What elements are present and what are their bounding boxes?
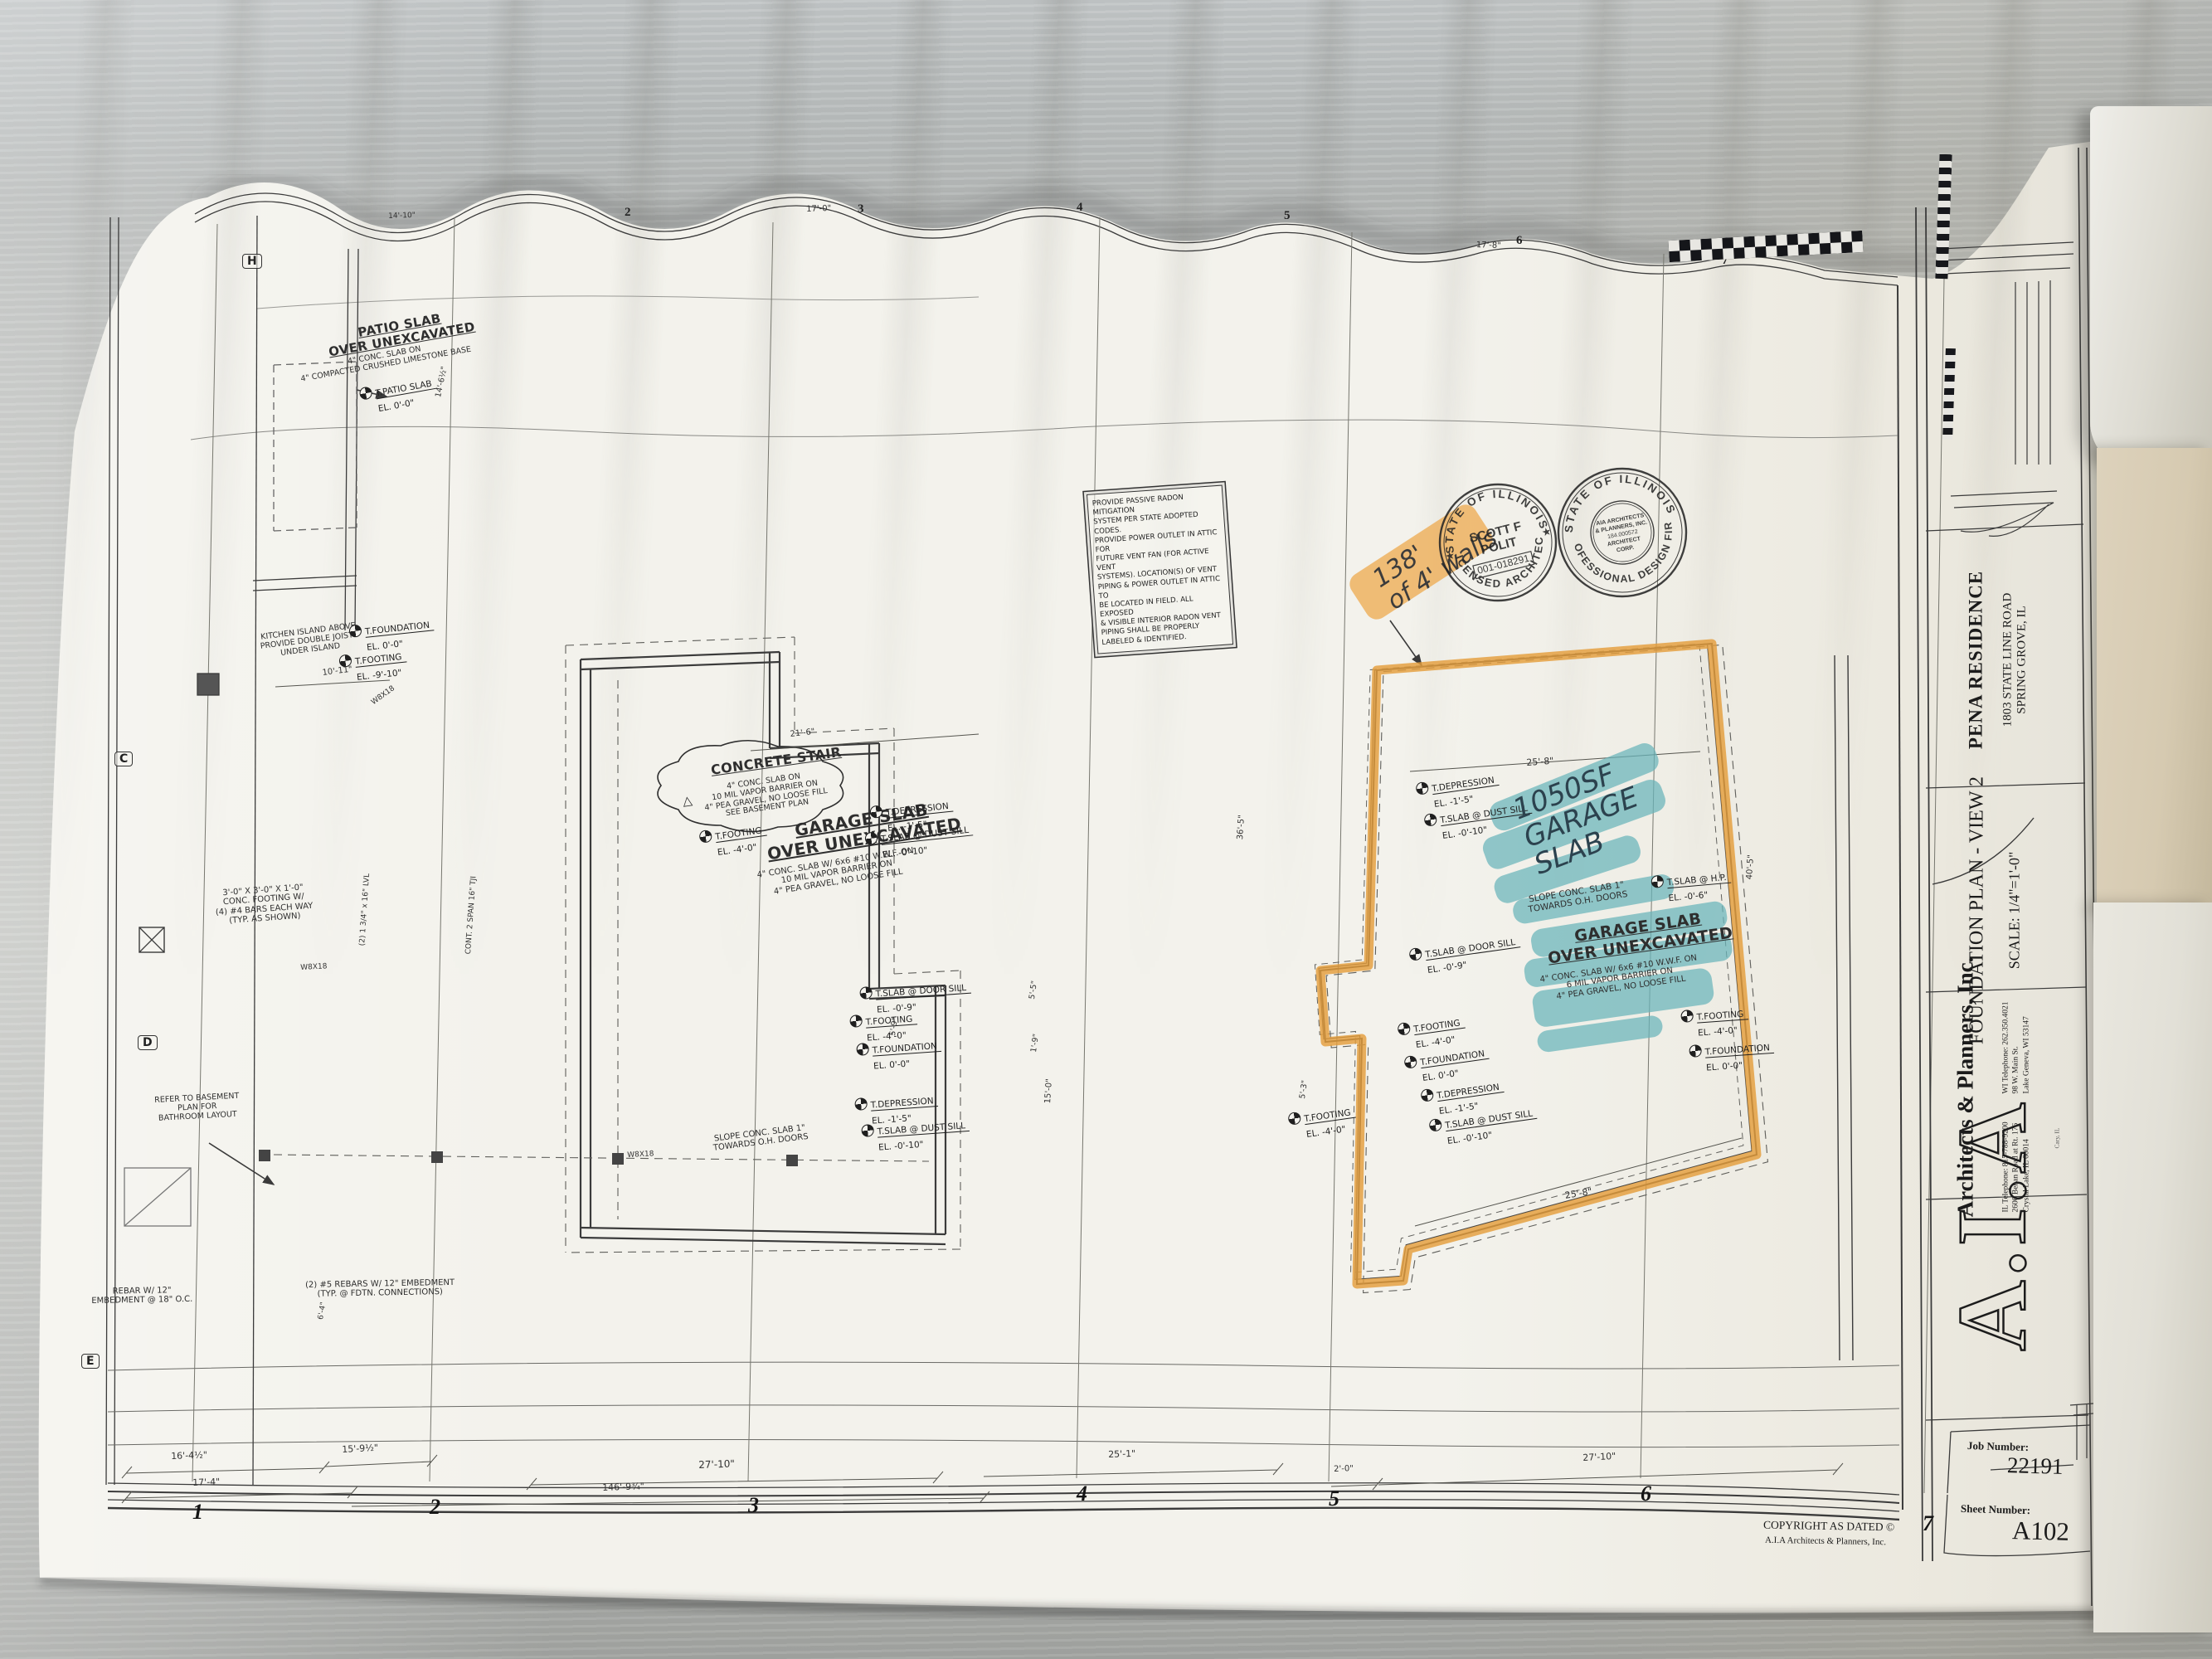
tan-sheet-right [2097, 448, 2212, 912]
blueprint-photo: PATIO SLAB OVER UNEXCAVATED4" CONC. SLAB… [0, 0, 2212, 1659]
contact-wi: WI Telephone: 262.350.4021 98 W. Main St… [2001, 970, 2031, 1094]
project-info: PENA RESIDENCE 1803 STATE LINE ROAD SPRI… [1952, 536, 2044, 785]
job-number-label: Job Number: [1967, 1439, 2029, 1454]
job-number: 22191 [2007, 1452, 2064, 1480]
stamp-licensed-architect: STATE OF ILLINOIS LICENSED ARCHITECT SCO… [1427, 472, 1568, 613]
stamp-design-firm: STATE OF ILLINOIS PROFESSIONAL DESIGN FI… [1548, 459, 1696, 606]
copyright-line2: A.I.A Architects & Planners, Inc. [1765, 1535, 1886, 1548]
contact-other: Cary, IL [2054, 1049, 2061, 1149]
project-name: PENA RESIDENCE [1966, 536, 1987, 785]
architect-stamps: STATE OF ILLINOIS LICENSED ARCHITECT SCO… [0, 0, 2212, 1659]
white-sheet-right [2093, 902, 2212, 1632]
stamp2-c5: CORP. [1616, 545, 1634, 554]
curled-sheet-top-right [2090, 106, 2212, 471]
aia-logo: A.I.A [1936, 1083, 2049, 1365]
copyright-line1: COPYRIGHT AS DATED © [1763, 1519, 1894, 1535]
sheet-number: A102 [2012, 1515, 2070, 1547]
project-address: 1803 STATE LINE ROAD SPRING GROVE, IL [2001, 536, 2030, 785]
stamp1-star-right: ★ [1540, 524, 1553, 538]
